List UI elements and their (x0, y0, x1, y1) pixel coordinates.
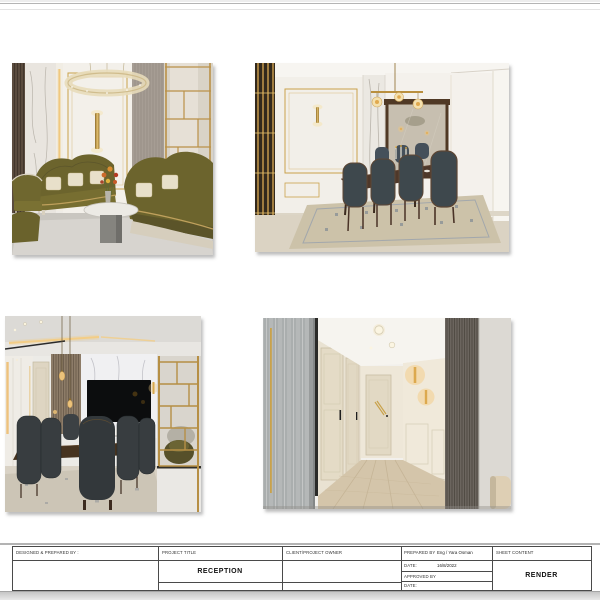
title-block-top-rule (0, 543, 600, 545)
photo-bottom-shadow (263, 506, 511, 509)
dark-divider (315, 318, 318, 496)
gold-partition-screen (157, 356, 201, 512)
sofa-right (124, 152, 213, 249)
armchairs-left (12, 174, 42, 243)
page-top-edge (0, 0, 600, 2)
date-value: 16/8/2022 (437, 563, 457, 568)
page-bottom-edge (0, 591, 600, 600)
divider (401, 547, 402, 590)
door-handle (340, 410, 342, 420)
end-wall-door (361, 366, 403, 458)
date-label: DATE: (404, 563, 417, 568)
living-room-image (12, 63, 213, 255)
render-dining-room (255, 63, 509, 252)
hallway-image (263, 318, 511, 509)
fluted-panel-left (263, 318, 315, 509)
dining-tv-wall-image (5, 316, 201, 512)
ceiling-cove (5, 316, 201, 356)
divider (158, 582, 401, 583)
render-hallway (263, 318, 511, 509)
designed-prepared-by-label: DESIGNED & PREPARED BY : (16, 550, 79, 555)
dining-room-image (255, 63, 509, 252)
approved-by-label: APPROVED BY (404, 574, 436, 579)
page-top-rule (0, 3, 600, 4)
presentation-sheet: DESIGNED & PREPARED BY : PROJECT TITLE R… (0, 0, 600, 600)
approved-date-label: DATE: (404, 583, 417, 588)
prepared-by-label: PREPARED BY (404, 550, 435, 555)
client-label: CLIENT/PROJECT OWNER (286, 550, 342, 555)
fluted-panel-right (445, 318, 511, 509)
render-dining-tv-wall (5, 316, 201, 512)
title-block: DESIGNED & PREPARED BY : PROJECT TITLE R… (12, 546, 592, 591)
divider (401, 571, 492, 572)
gold-sconce (316, 107, 319, 123)
project-title-label: PROJECT TITLE (162, 550, 196, 555)
gold-strip (270, 328, 272, 493)
render-living-room (12, 63, 213, 255)
right-wall-sconces (403, 358, 445, 481)
sheet-content-value: RENDER (492, 560, 591, 590)
prepared-by-value: Eng / Yara Osman (437, 550, 473, 555)
divider (282, 547, 283, 590)
project-title-value: RECEPTION (158, 560, 282, 582)
page-top-rule-light (0, 9, 600, 10)
sheet-content-label: SHEET CONTENT (496, 550, 534, 555)
tv-wall-sconce (153, 382, 155, 394)
gold-sconce (414, 367, 417, 383)
